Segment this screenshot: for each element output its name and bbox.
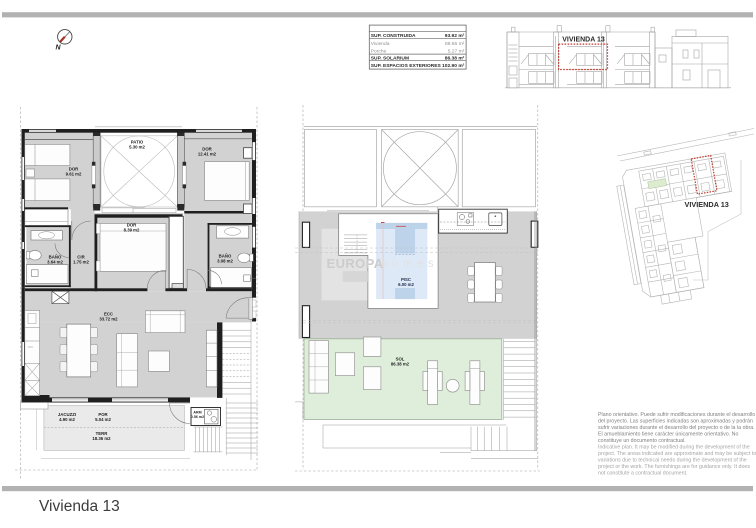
- svg-text:86.38 m2: 86.38 m2: [391, 362, 410, 367]
- svg-text:86.38 m²: 86.38 m²: [445, 55, 465, 61]
- svg-text:Vivienda: Vivienda: [371, 41, 390, 47]
- svg-text:18.36 m2: 18.36 m2: [92, 436, 111, 441]
- svg-text:Porche: Porche: [371, 48, 387, 54]
- svg-text:homes: homes: [381, 258, 438, 270]
- svg-text:N: N: [56, 45, 62, 52]
- svg-text:5.27 m²: 5.27 m²: [448, 48, 465, 54]
- svg-text:VIVIENDA 13: VIVIENDA 13: [562, 36, 605, 43]
- svg-text:del proyecto. Las superficies: del proyecto. Las superficies indicadas …: [598, 418, 753, 424]
- svg-text:33.72 m2: 33.72 m2: [99, 317, 118, 322]
- svg-text:SUP. SOLARIUM: SUP. SOLARIUM: [371, 55, 409, 61]
- svg-text:EUROPA: EUROPA: [327, 256, 384, 271]
- svg-text:1.75 m2: 1.75 m2: [73, 260, 89, 265]
- svg-text:SUP. ESPACIOS EXTERIORES: SUP. ESPACIOS EXTERIORES: [371, 63, 442, 69]
- svg-text:0.56 m2: 0.56 m2: [191, 415, 204, 419]
- svg-text:93.92 m²: 93.92 m²: [445, 33, 465, 39]
- svg-text:project or the work. The furni: project or the work. The furnishings are…: [598, 464, 750, 470]
- svg-text:102.90 m²: 102.90 m²: [442, 63, 465, 69]
- svg-text:5.30 m2: 5.30 m2: [129, 145, 145, 150]
- svg-text:Vivienda 13: Vivienda 13: [39, 498, 120, 515]
- svg-text:Plano orientativo. Puede sufri: Plano orientativo. Puede sufrir modifica…: [598, 412, 755, 418]
- svg-text:variations due to technical ne: variations due to technical needs during…: [598, 457, 747, 463]
- svg-text:12.41 m2: 12.41 m2: [198, 152, 217, 157]
- svg-text:constituye un documento contra: constituye un documento contractual.: [598, 438, 686, 444]
- svg-text:El amueblamiento tiene carácte: El amueblamiento tiene carácter únicamen…: [598, 431, 738, 437]
- svg-text:6.00 m2: 6.00 m2: [398, 282, 414, 287]
- svg-text:not constitute a contractual d: not constitute a contractual document.: [598, 470, 688, 476]
- svg-text:SUP. CONSTRUIDA: SUP. CONSTRUIDA: [371, 33, 416, 39]
- svg-text:Indicative plan. It may be mod: Indicative plan. It may be modified duri…: [598, 444, 750, 450]
- svg-text:3.08 m2: 3.08 m2: [217, 259, 233, 264]
- svg-text:4.90 m2: 4.90 m2: [59, 417, 75, 422]
- svg-text:project. The areas indicated a: project. The areas indicated are approxi…: [598, 451, 756, 457]
- svg-text:9.61 m2: 9.61 m2: [66, 172, 82, 177]
- svg-text:8.39 m2: 8.39 m2: [124, 228, 140, 233]
- svg-text:sufrir variaciones durante el: sufrir variaciones durante el desarrollo…: [598, 425, 755, 431]
- svg-text:VIVIENDA 13: VIVIENDA 13: [685, 200, 729, 209]
- svg-text:88.65 m²: 88.65 m²: [445, 41, 465, 47]
- svg-text:3.64 m2: 3.64 m2: [47, 260, 63, 265]
- svg-text:5.04 m2: 5.04 m2: [95, 417, 111, 422]
